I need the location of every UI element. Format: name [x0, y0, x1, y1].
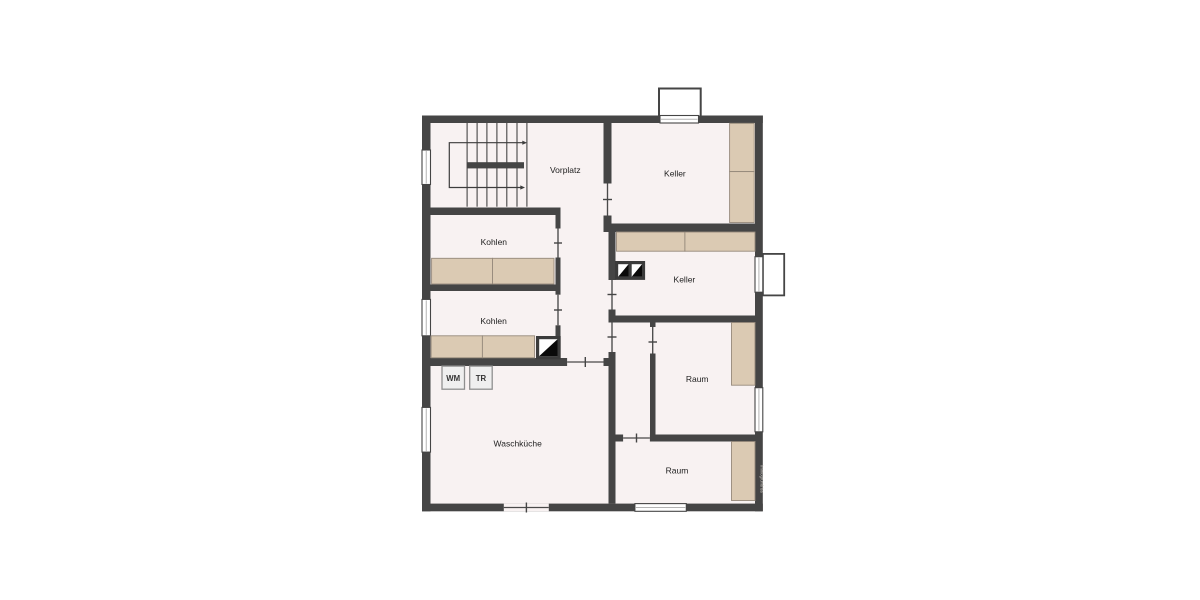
- svg-text:Immogrundriss: Immogrundriss: [760, 465, 765, 493]
- svg-text:TR: TR: [476, 374, 487, 383]
- svg-text:Keller: Keller: [674, 275, 696, 285]
- svg-text:Kohlen: Kohlen: [480, 316, 507, 326]
- svg-text:Raum: Raum: [666, 466, 689, 476]
- svg-text:Raum: Raum: [686, 374, 709, 384]
- svg-text:Kohlen: Kohlen: [481, 237, 508, 247]
- svg-text:WM: WM: [446, 374, 460, 383]
- svg-text:Waschküche: Waschküche: [494, 438, 543, 448]
- svg-text:Vorplatz: Vorplatz: [550, 165, 581, 175]
- svg-text:Keller: Keller: [664, 169, 686, 179]
